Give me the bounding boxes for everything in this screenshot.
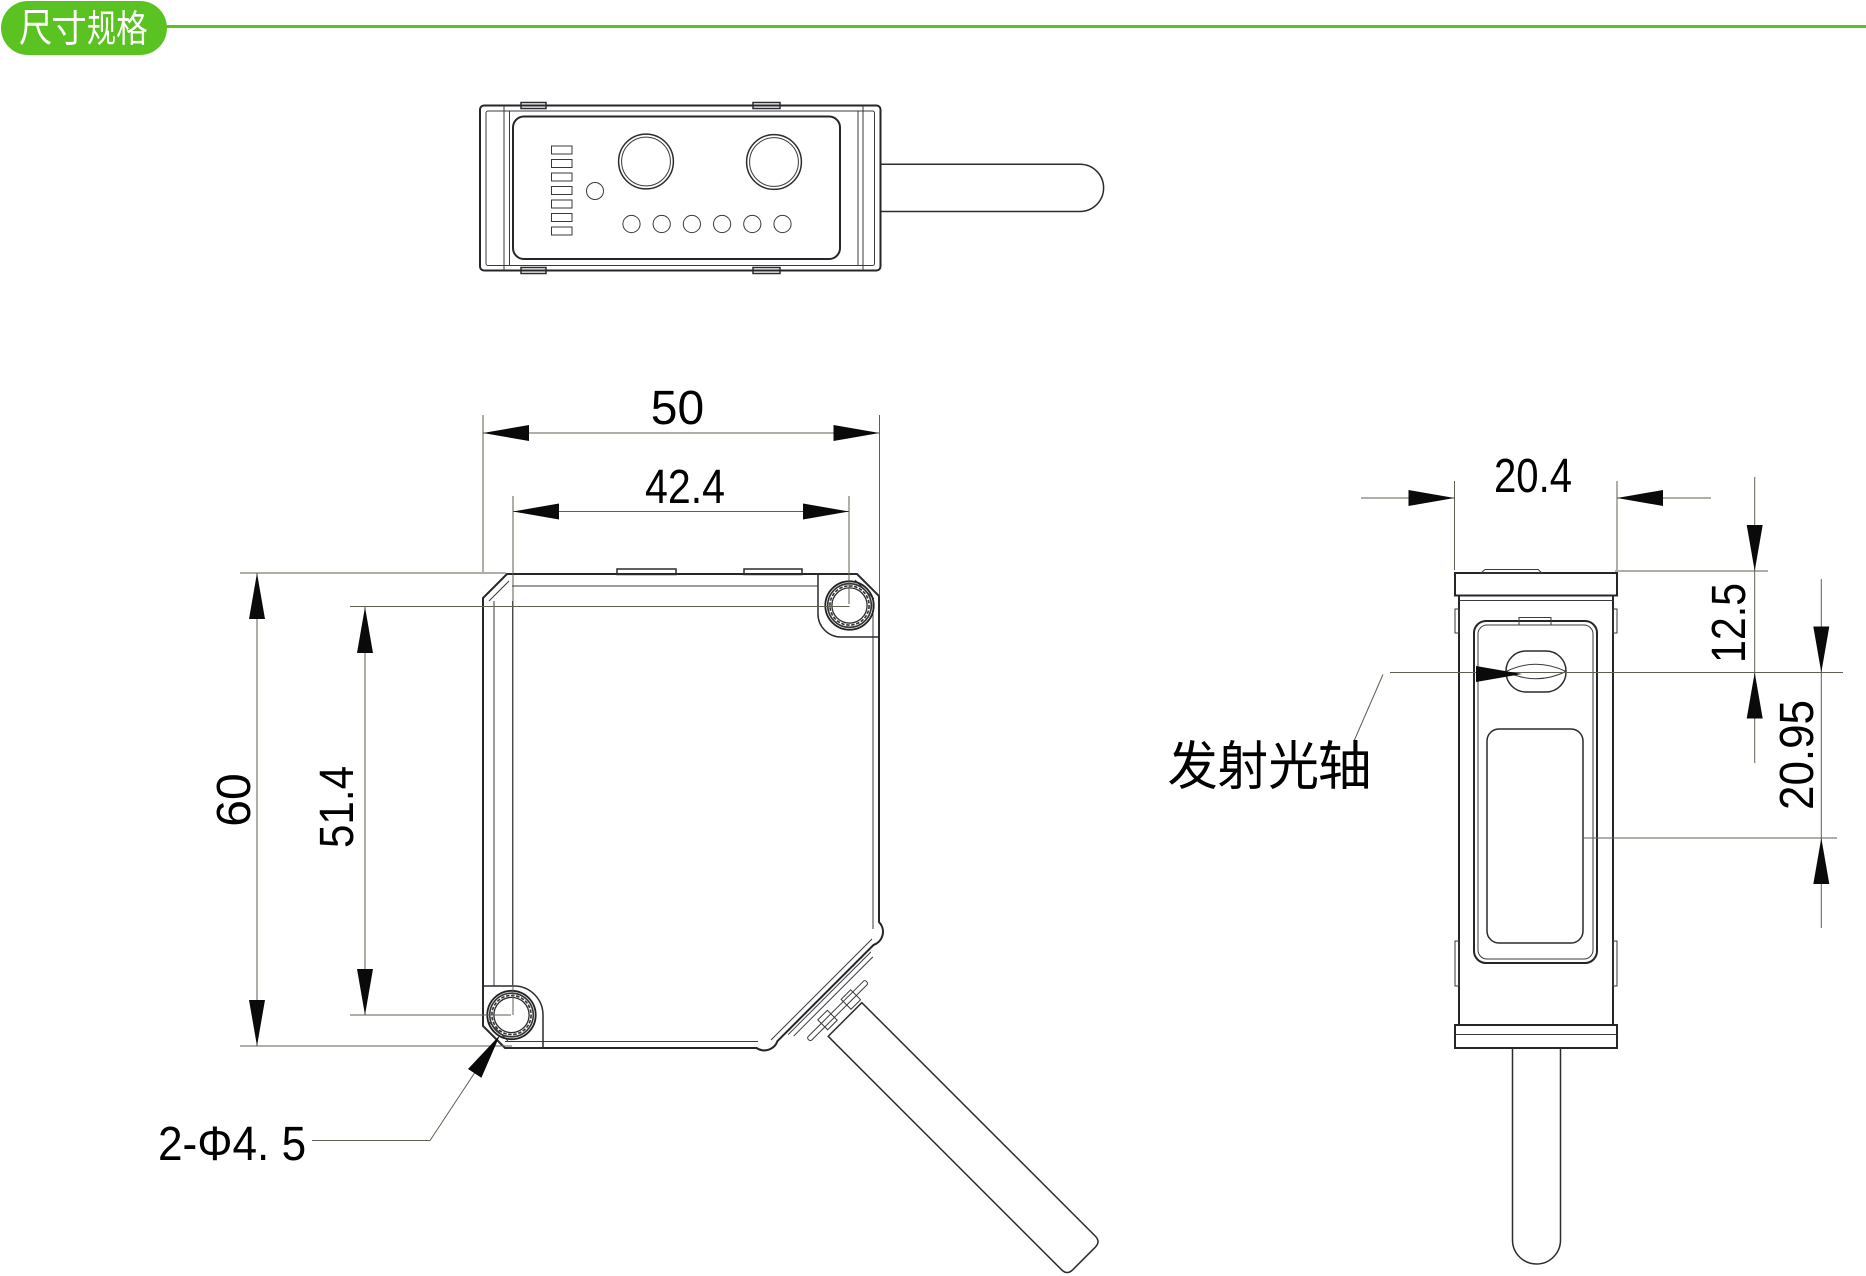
svg-text:2-Φ4. 5: 2-Φ4. 5 [158, 1116, 306, 1170]
svg-text:60: 60 [208, 773, 261, 826]
svg-text:20.4: 20.4 [1494, 450, 1572, 503]
svg-text:51.4: 51.4 [311, 766, 364, 848]
svg-text:12.5: 12.5 [1703, 583, 1756, 663]
svg-text:50: 50 [651, 382, 704, 435]
svg-text:42.4: 42.4 [645, 461, 725, 514]
svg-text:20.95: 20.95 [1771, 700, 1824, 810]
